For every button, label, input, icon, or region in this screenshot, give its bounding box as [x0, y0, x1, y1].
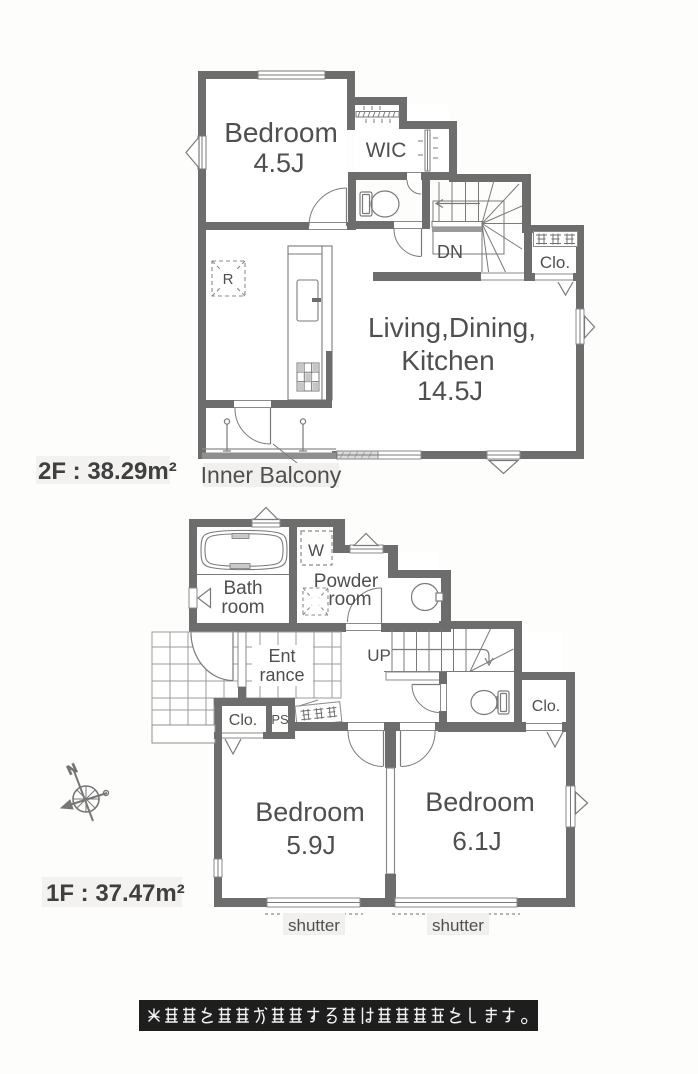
svg-text:Bath: Bath	[223, 578, 262, 599]
svg-text:6.1J: 6.1J	[452, 826, 501, 856]
svg-text:shutter: shutter	[432, 916, 484, 935]
svg-text:R: R	[223, 271, 234, 288]
svg-text:WIC: WIC	[366, 139, 407, 162]
svg-text:Bedroom: Bedroom	[425, 787, 535, 817]
svg-text:Clo.: Clo.	[532, 698, 560, 715]
svg-text:DN: DN	[437, 242, 463, 262]
svg-text:Bedroom: Bedroom	[255, 797, 365, 827]
svg-text:room: room	[328, 589, 371, 610]
svg-text:Clo.: Clo.	[229, 712, 257, 729]
svg-text:4.5J: 4.5J	[253, 148, 304, 178]
svg-text:Clo.: Clo.	[540, 253, 570, 272]
svg-text:room: room	[221, 597, 264, 618]
svg-text:Bedroom: Bedroom	[224, 117, 338, 148]
svg-text:Kitchen: Kitchen	[401, 345, 494, 376]
svg-text:UP: UP	[367, 646, 391, 665]
svg-text:14.5J: 14.5J	[417, 376, 483, 406]
svg-text:1F : 37.47m²: 1F : 37.47m²	[46, 880, 185, 907]
svg-text:W: W	[308, 541, 324, 560]
svg-text:PS: PS	[271, 712, 289, 727]
svg-text:Ent: Ent	[268, 646, 295, 666]
svg-text:Inner Balcony: Inner Balcony	[201, 462, 342, 488]
svg-text:rance: rance	[259, 665, 304, 685]
svg-text:Living,Dining,: Living,Dining,	[368, 312, 536, 343]
svg-text:shutter: shutter	[288, 916, 340, 935]
svg-text:2F : 38.29m²: 2F : 38.29m²	[38, 458, 177, 485]
svg-text:5.9J: 5.9J	[286, 830, 335, 860]
